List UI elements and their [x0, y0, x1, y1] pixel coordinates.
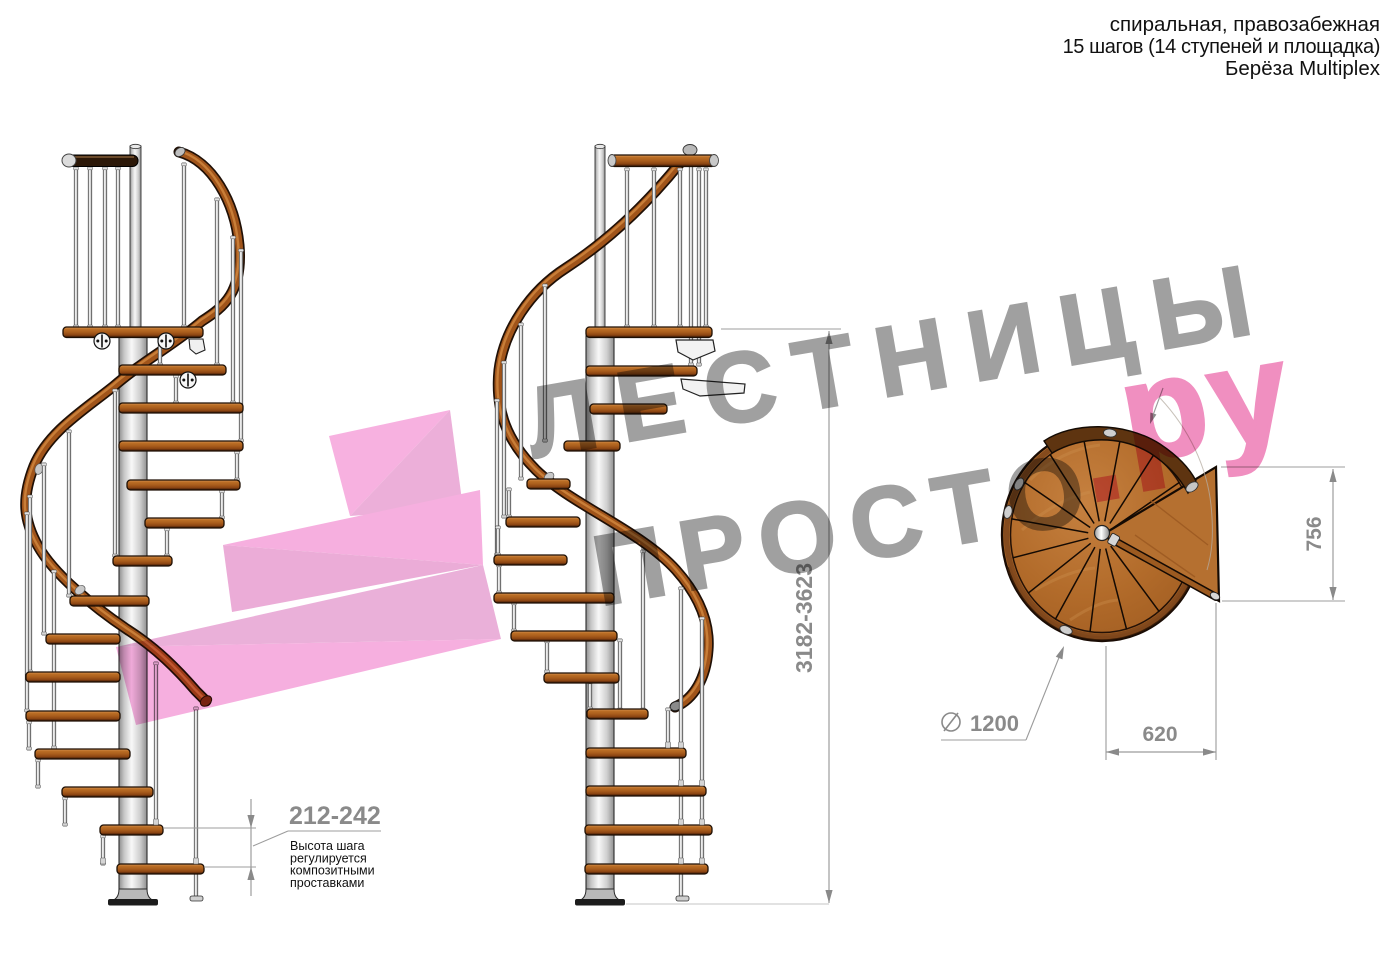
svg-text:Высота шагарегулируетсякомпози: Высота шагарегулируетсякомпозитнымипрост…: [290, 839, 375, 890]
svg-text:15 шагов (14 ступеней и площад: 15 шагов (14 ступеней и площадка): [1063, 36, 1380, 58]
svg-text:620: 620: [1142, 723, 1177, 746]
svg-text:212-242: 212-242: [289, 802, 381, 830]
svg-text:Берёза Multiplex: Берёза Multiplex: [1225, 57, 1381, 80]
svg-text:756: 756: [1303, 516, 1326, 551]
svg-text:спиральная, правозабежная: спиральная, правозабежная: [1110, 13, 1380, 36]
svg-text:1200: 1200: [970, 711, 1019, 736]
